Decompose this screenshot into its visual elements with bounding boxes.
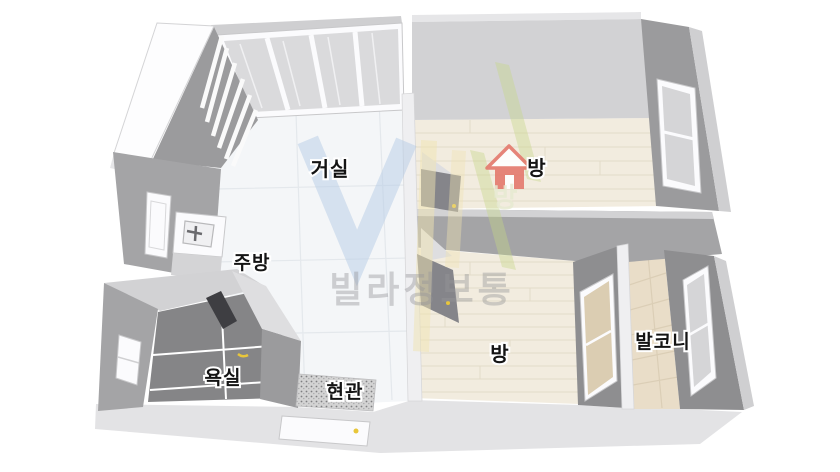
- label-living-room: 거실: [311, 158, 350, 181]
- room-top-north-wall: [412, 19, 656, 120]
- floorplan-screenshot: 방 빌라정보통 거실 방 주방 욕실 현관 방 발코니: [0, 0, 840, 472]
- watermark-room-glyph: 방: [493, 183, 518, 213]
- watermark-brand-text: 빌라정보통: [329, 269, 515, 310]
- label-balcony: 발코니: [635, 331, 690, 353]
- label-room-top: 방: [527, 157, 546, 180]
- label-room-bottom: 방: [490, 343, 509, 366]
- front-door-handle: [354, 429, 359, 434]
- bathroom-east-wall: [260, 329, 301, 408]
- floorplan-3d-view: 방 빌라정보통 거실 방 주방 욕실 현관 방 발코니: [0, 0, 840, 472]
- label-entrance: 현관: [327, 381, 364, 403]
- label-bathroom: 욕실: [205, 367, 242, 389]
- label-kitchen: 주방: [234, 252, 271, 274]
